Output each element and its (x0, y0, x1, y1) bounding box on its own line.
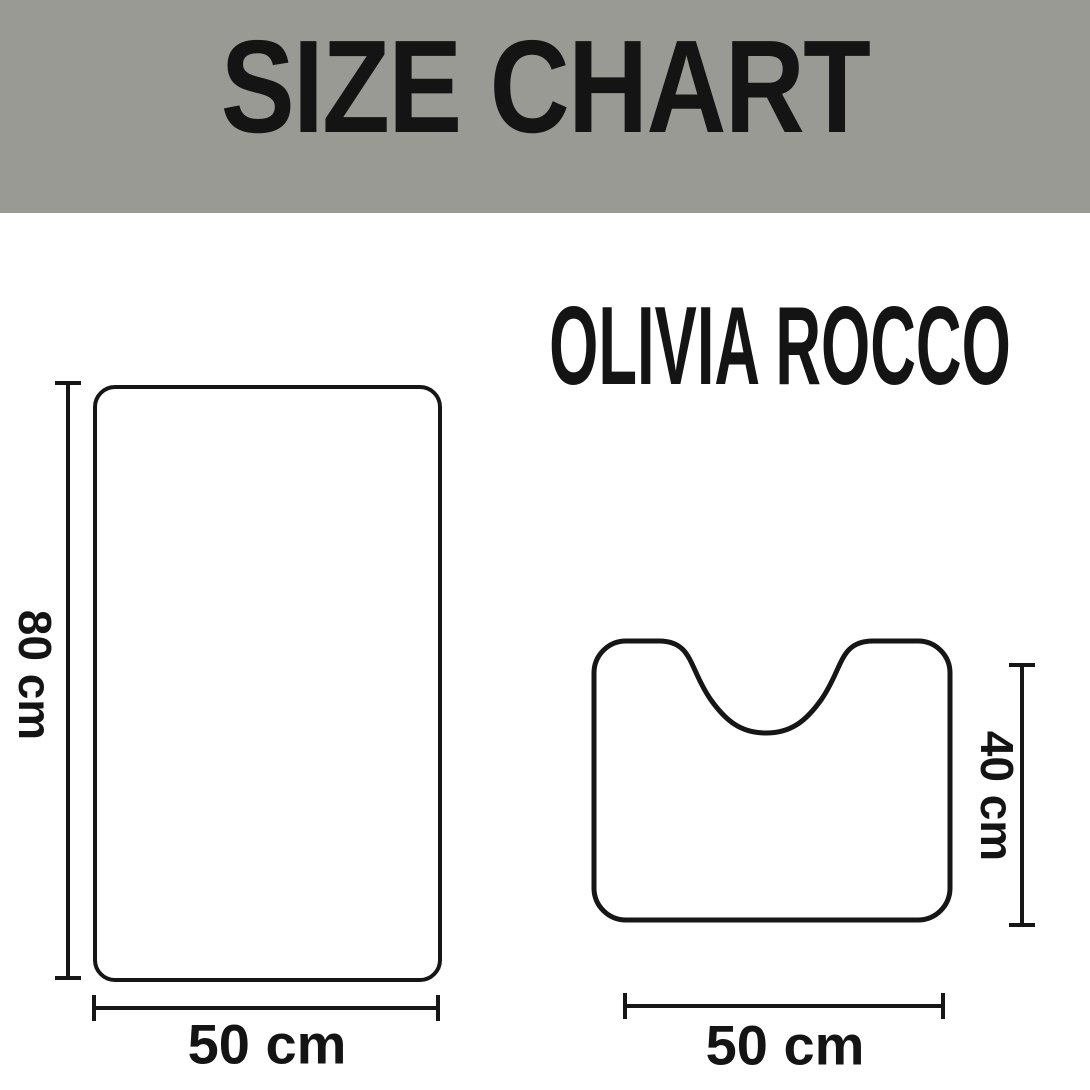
dimension-line (92, 1006, 440, 1010)
bath-mat-width-label: 50 cm (188, 1012, 347, 1077)
pedestal-mat-outline (594, 641, 950, 920)
size-chart-page: SIZE CHART OLIVIA ROCCO 80 cm 50 cm 40 c… (0, 0, 1090, 1090)
bath-mat-shape (93, 385, 442, 982)
size-chart-title: SIZE CHART (221, 11, 869, 162)
pedestal-mat-width-label: 50 cm (706, 1013, 865, 1078)
dimension-line (623, 1004, 945, 1008)
pedestal-mat-height-label: 40 cm (970, 731, 1024, 861)
dimension-end-cap (941, 993, 945, 1019)
brand-title: OLIVIA ROCCO (549, 282, 1011, 410)
dimension-end-cap (436, 995, 440, 1021)
dimension-end-cap (1009, 923, 1035, 927)
size-chart-banner: SIZE CHART (0, 0, 1090, 213)
dimension-end-cap (55, 976, 81, 980)
dimension-line (66, 381, 70, 980)
pedestal-mat-shape (591, 638, 955, 924)
bath-mat-height-label: 80 cm (8, 610, 62, 740)
